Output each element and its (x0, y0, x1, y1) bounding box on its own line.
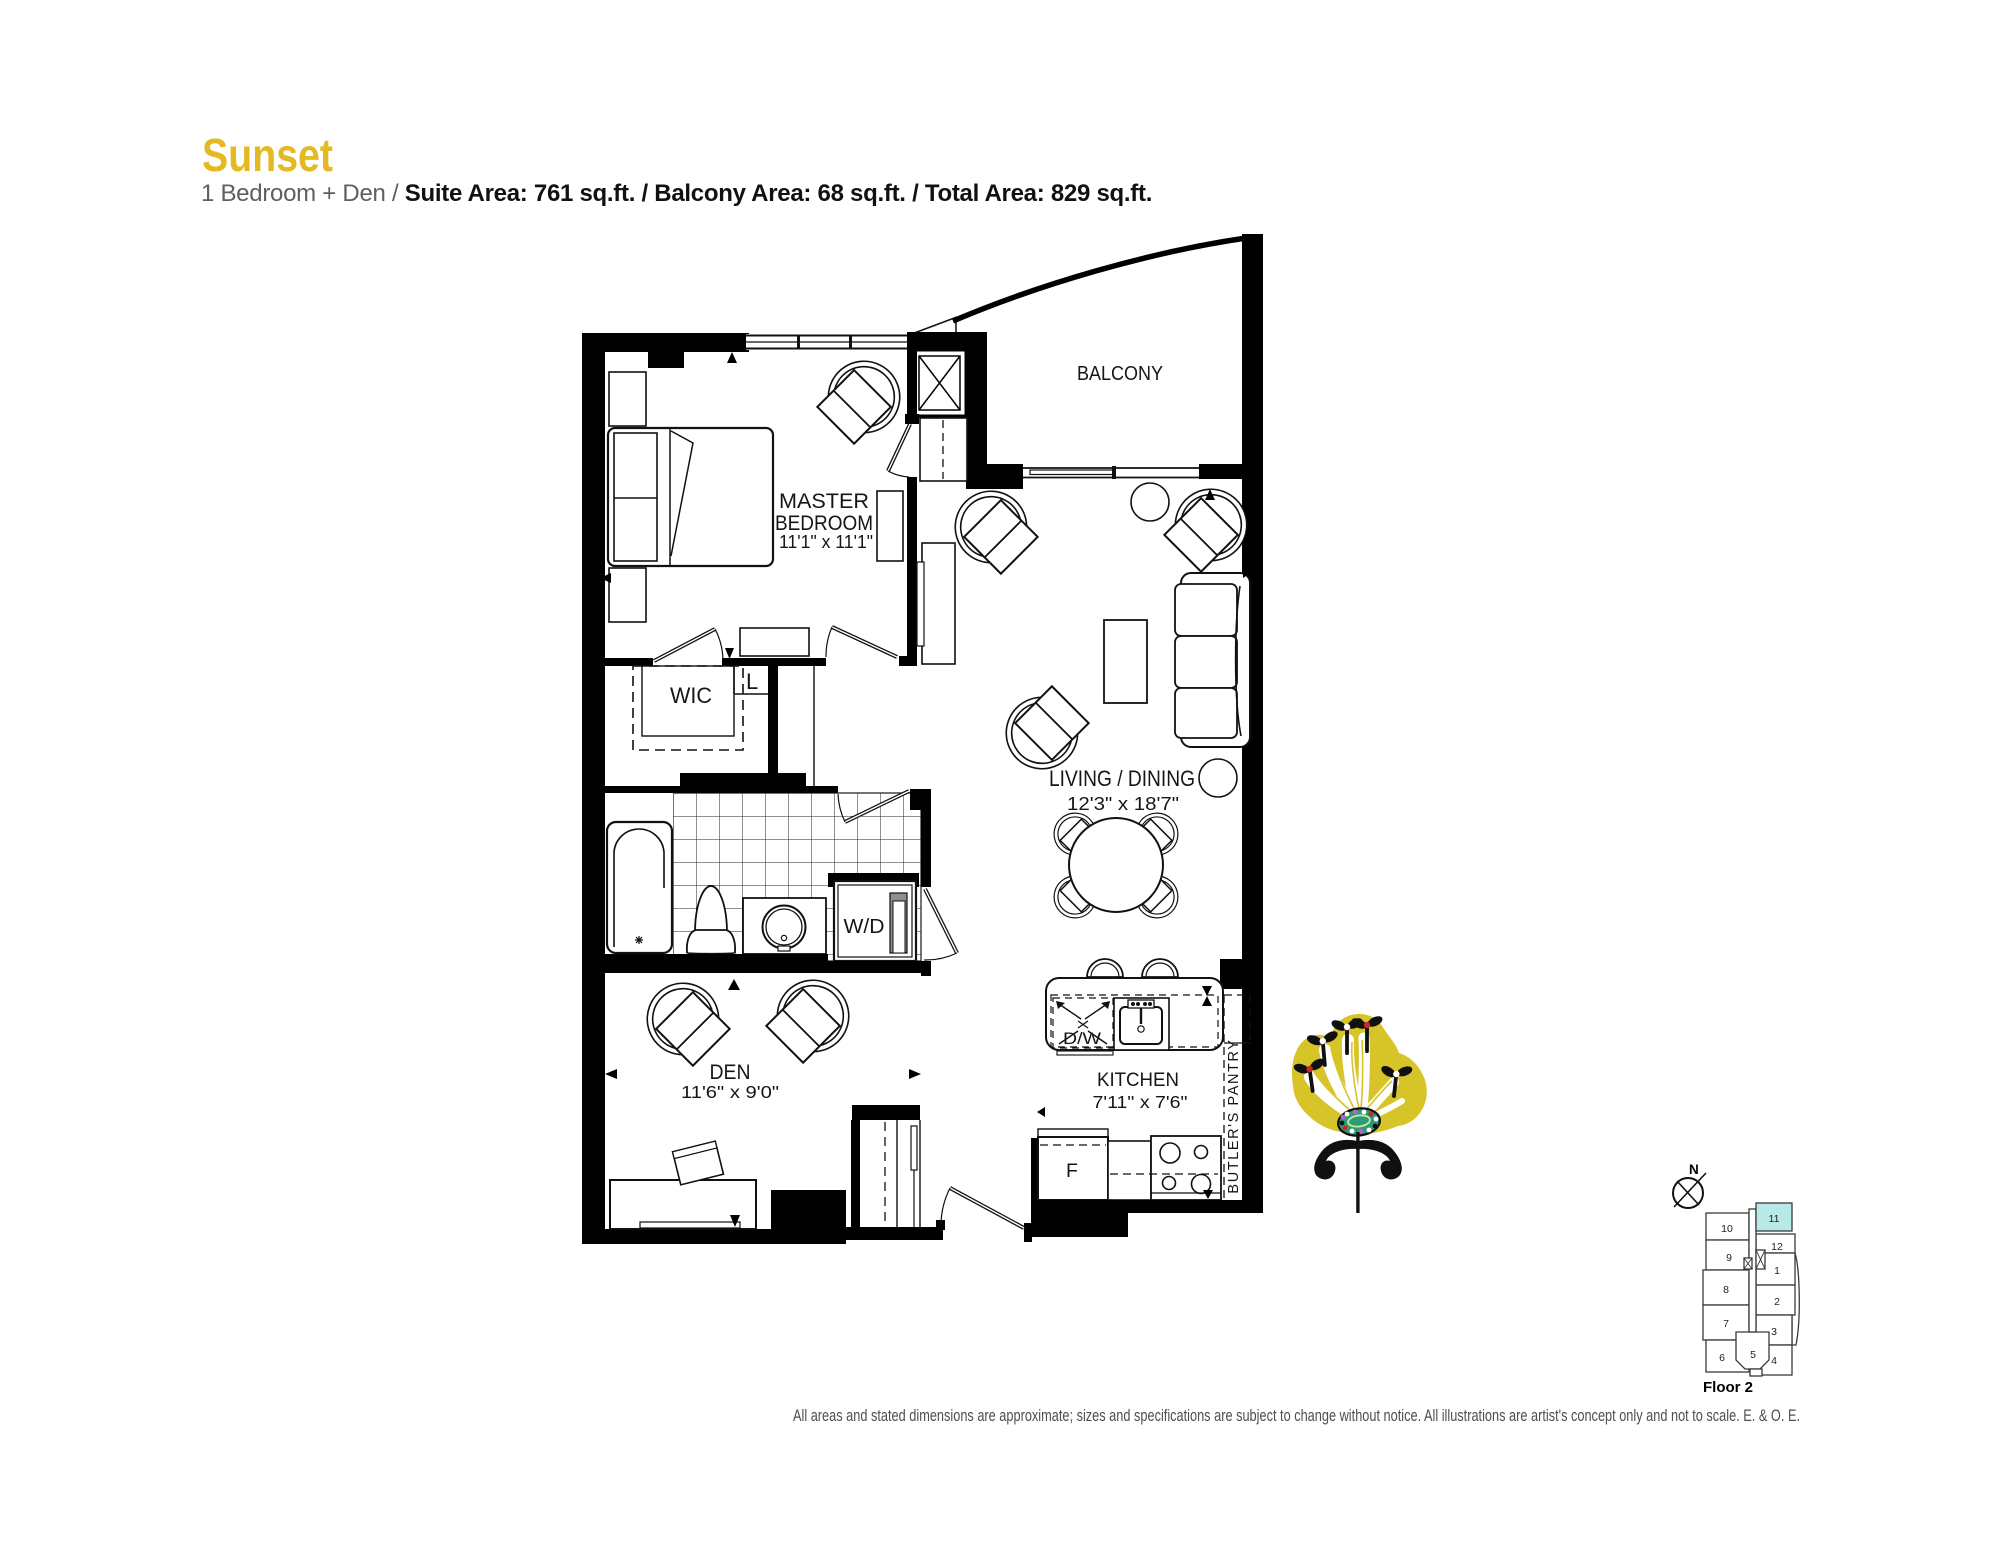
svg-text:3: 3 (1771, 1326, 1777, 1338)
svg-text:Floor 2: Floor 2 (1703, 1379, 1753, 1396)
svg-text:Sunset: Sunset (202, 129, 333, 181)
svg-text:N: N (1689, 1162, 1699, 1177)
svg-text:12: 12 (1771, 1241, 1783, 1253)
svg-text:F: F (1066, 1160, 1078, 1182)
svg-text:11: 11 (1769, 1213, 1780, 1225)
svg-text:MASTER: MASTER (779, 490, 869, 513)
svg-text:5: 5 (1750, 1349, 1756, 1361)
svg-text:All areas and stated dimension: All areas and stated dimensions are appr… (793, 1406, 1800, 1425)
svg-text:8: 8 (1723, 1284, 1729, 1296)
svg-text:DEN: DEN (710, 1061, 751, 1084)
svg-text:WIC: WIC (670, 683, 712, 708)
svg-text:1: 1 (1774, 1265, 1780, 1277)
svg-text:7'11" x 7'6": 7'11" x 7'6" (1093, 1092, 1188, 1112)
svg-text:11'6" x 9'0": 11'6" x 9'0" (681, 1082, 779, 1102)
svg-text:6: 6 (1719, 1352, 1725, 1364)
svg-text:12'3" x 18'7": 12'3" x 18'7" (1067, 793, 1179, 814)
svg-text:4: 4 (1771, 1355, 1777, 1367)
svg-text:D/W: D/W (1063, 1030, 1101, 1048)
svg-text:10: 10 (1721, 1223, 1733, 1235)
svg-text:W/D: W/D (844, 916, 885, 938)
svg-text:BALCONY: BALCONY (1077, 362, 1163, 385)
svg-text:2: 2 (1774, 1296, 1780, 1308)
svg-text:KITCHEN: KITCHEN (1097, 1069, 1179, 1091)
svg-text:1 Bedroom + Den / Suite Area:: 1 Bedroom + Den / Suite Area: 761 sq.ft.… (201, 180, 1152, 207)
svg-text:LIVING / DINING: LIVING / DINING (1049, 766, 1195, 791)
svg-text:7: 7 (1723, 1318, 1729, 1330)
svg-text:L: L (746, 669, 758, 694)
svg-text:11'1" x 11'1": 11'1" x 11'1" (779, 531, 873, 552)
svg-text:BUTLER'S PANTRY: BUTLER'S PANTRY (1226, 1038, 1242, 1193)
svg-text:9: 9 (1726, 1252, 1732, 1264)
